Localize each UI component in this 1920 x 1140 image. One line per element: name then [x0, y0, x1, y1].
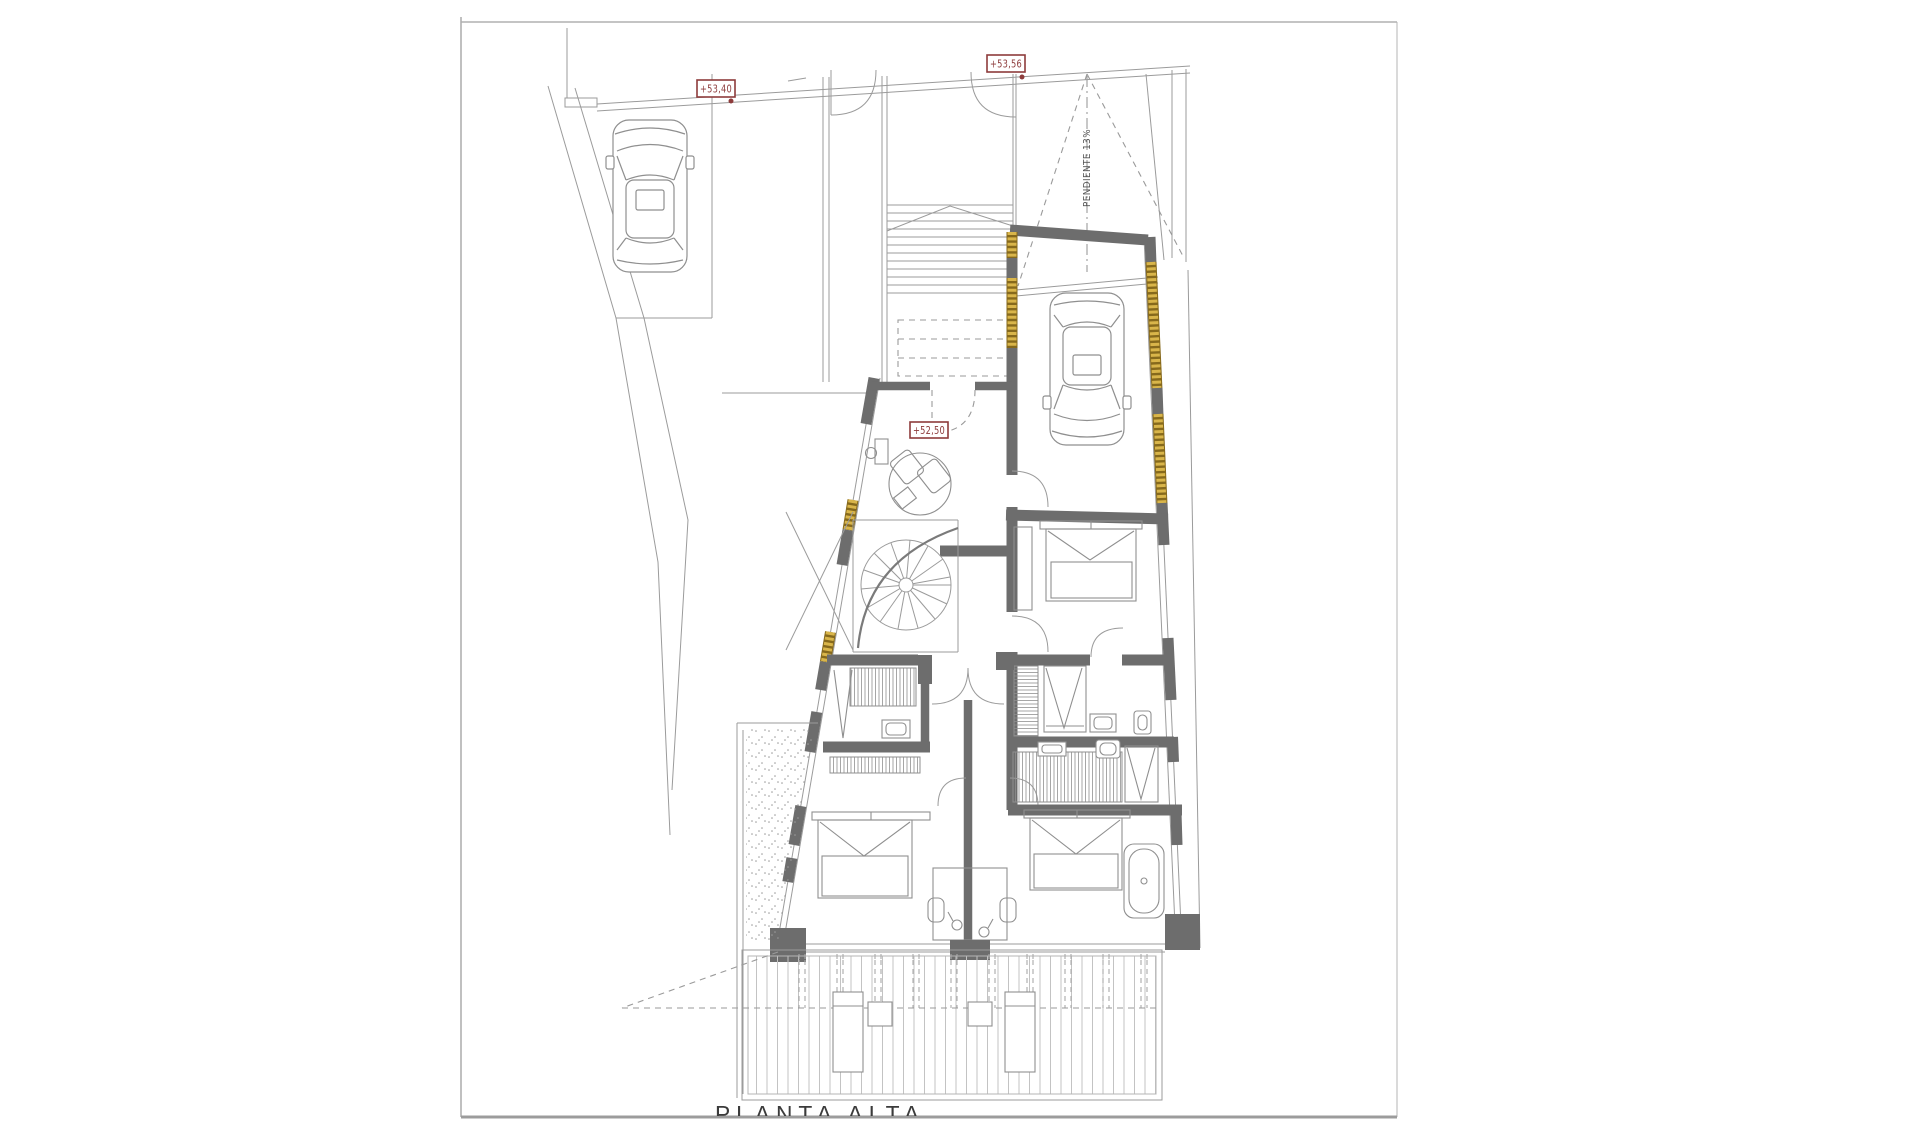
bathtub — [1124, 844, 1164, 918]
floor-plan-drawing: PENDIENTE 13% — [0, 0, 1920, 1140]
spiral-staircase — [853, 520, 958, 652]
car-top-view-parking — [606, 120, 694, 272]
elevation-label-52-50: +52,50 — [910, 422, 948, 438]
terrace — [622, 950, 1162, 1100]
floor-void-cross — [786, 512, 853, 650]
ramp-slope-note: PENDIENTE 13% — [1082, 129, 1093, 207]
bathroom-2 — [823, 660, 930, 773]
desk-chair-right — [1000, 898, 1016, 922]
elevation-value: +53,56 — [990, 59, 1022, 71]
elevation-value: +53,40 — [700, 84, 732, 96]
car-top-view-garage — [1043, 293, 1131, 445]
round-table-seating — [889, 449, 952, 515]
elevation-value: +52,50 — [913, 425, 945, 437]
bedroom-3 — [1024, 810, 1164, 918]
elevation-label-53-40: +53,40 — [697, 80, 735, 104]
desk-chair-left — [928, 898, 944, 922]
plan-title: PLANTA ALTA — [715, 1101, 925, 1127]
bedroom-2 — [812, 812, 930, 898]
garage — [1006, 230, 1168, 523]
access-ramp: PENDIENTE 13% — [1016, 74, 1184, 296]
straight-staircase — [823, 70, 1016, 382]
dressing-area — [1008, 740, 1182, 810]
floor-plan-page: PENDIENTE 13% — [0, 0, 1920, 1140]
bathroom-1 — [1008, 628, 1174, 742]
right-facade-wall — [1144, 237, 1200, 950]
elevation-label-53-56: +53,56 — [987, 55, 1025, 80]
